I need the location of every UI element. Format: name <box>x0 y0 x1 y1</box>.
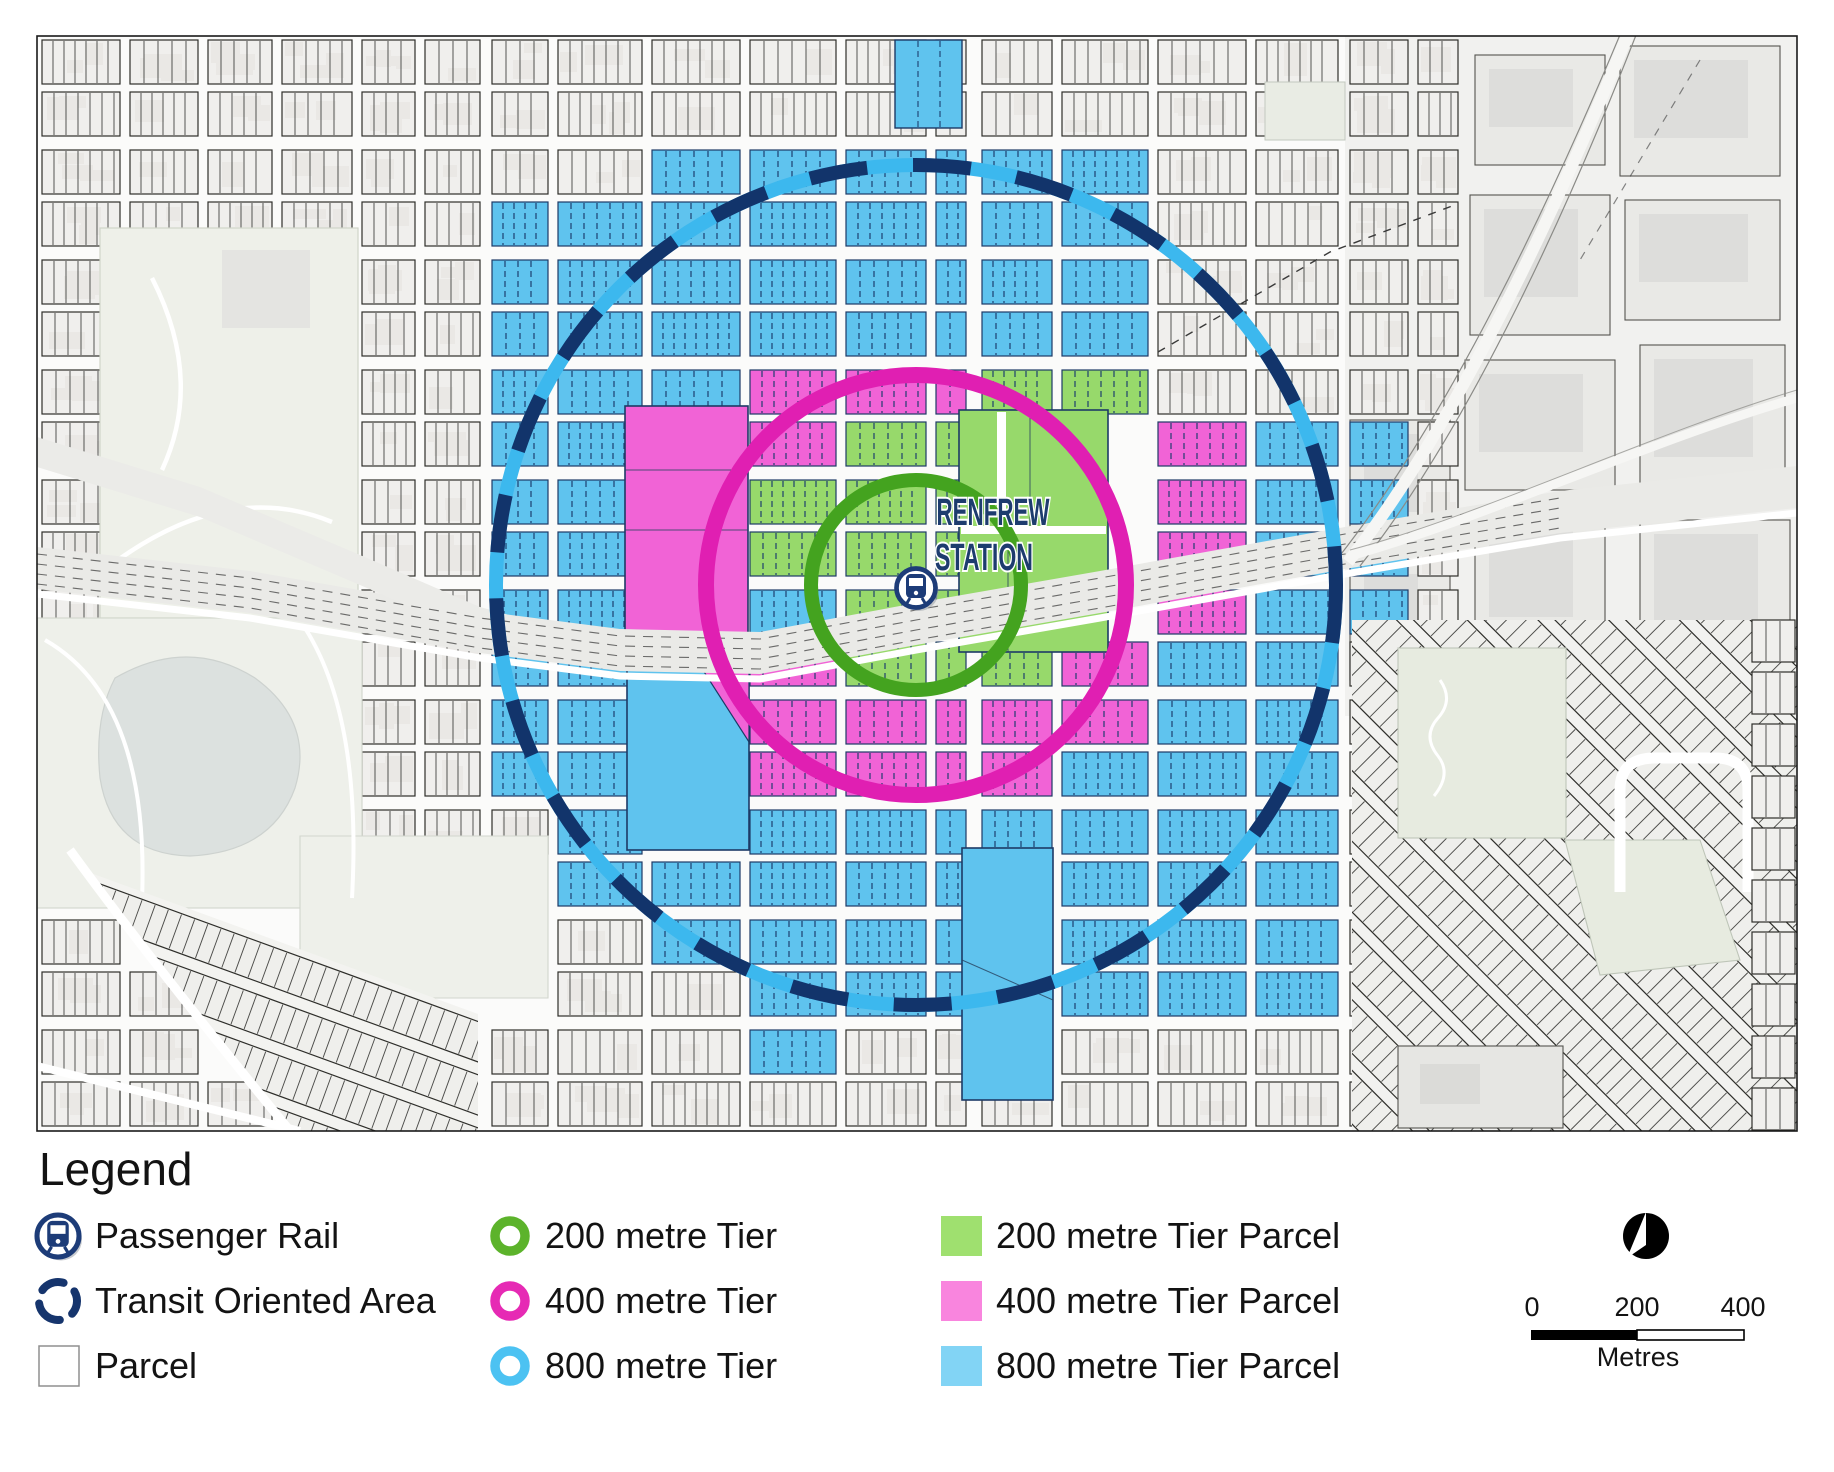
svg-text:400: 400 <box>1720 1292 1765 1322</box>
svg-text:200 metre Tier: 200 metre Tier <box>545 1215 777 1256</box>
svg-text:400 metre Tier: 400 metre Tier <box>545 1280 777 1321</box>
svg-text:200: 200 <box>1614 1292 1659 1322</box>
svg-text:RENFREW: RENFREW <box>937 492 1050 534</box>
svg-text:400 metre Tier Parcel: 400 metre Tier Parcel <box>996 1280 1340 1321</box>
svg-text:Parcel: Parcel <box>95 1345 197 1386</box>
svg-text:800 metre Tier: 800 metre Tier <box>545 1345 777 1386</box>
svg-text:Transit Oriented Area: Transit Oriented Area <box>95 1280 437 1321</box>
svg-text:Metres: Metres <box>1597 1342 1680 1372</box>
svg-text:STATION: STATION <box>935 537 1033 579</box>
svg-text:Legend: Legend <box>39 1143 193 1195</box>
svg-text:200 metre Tier Parcel: 200 metre Tier Parcel <box>996 1215 1340 1256</box>
svg-text:Passenger Rail: Passenger Rail <box>95 1215 339 1256</box>
svg-text:800 metre Tier Parcel: 800 metre Tier Parcel <box>996 1345 1340 1386</box>
svg-text:0: 0 <box>1524 1292 1539 1322</box>
